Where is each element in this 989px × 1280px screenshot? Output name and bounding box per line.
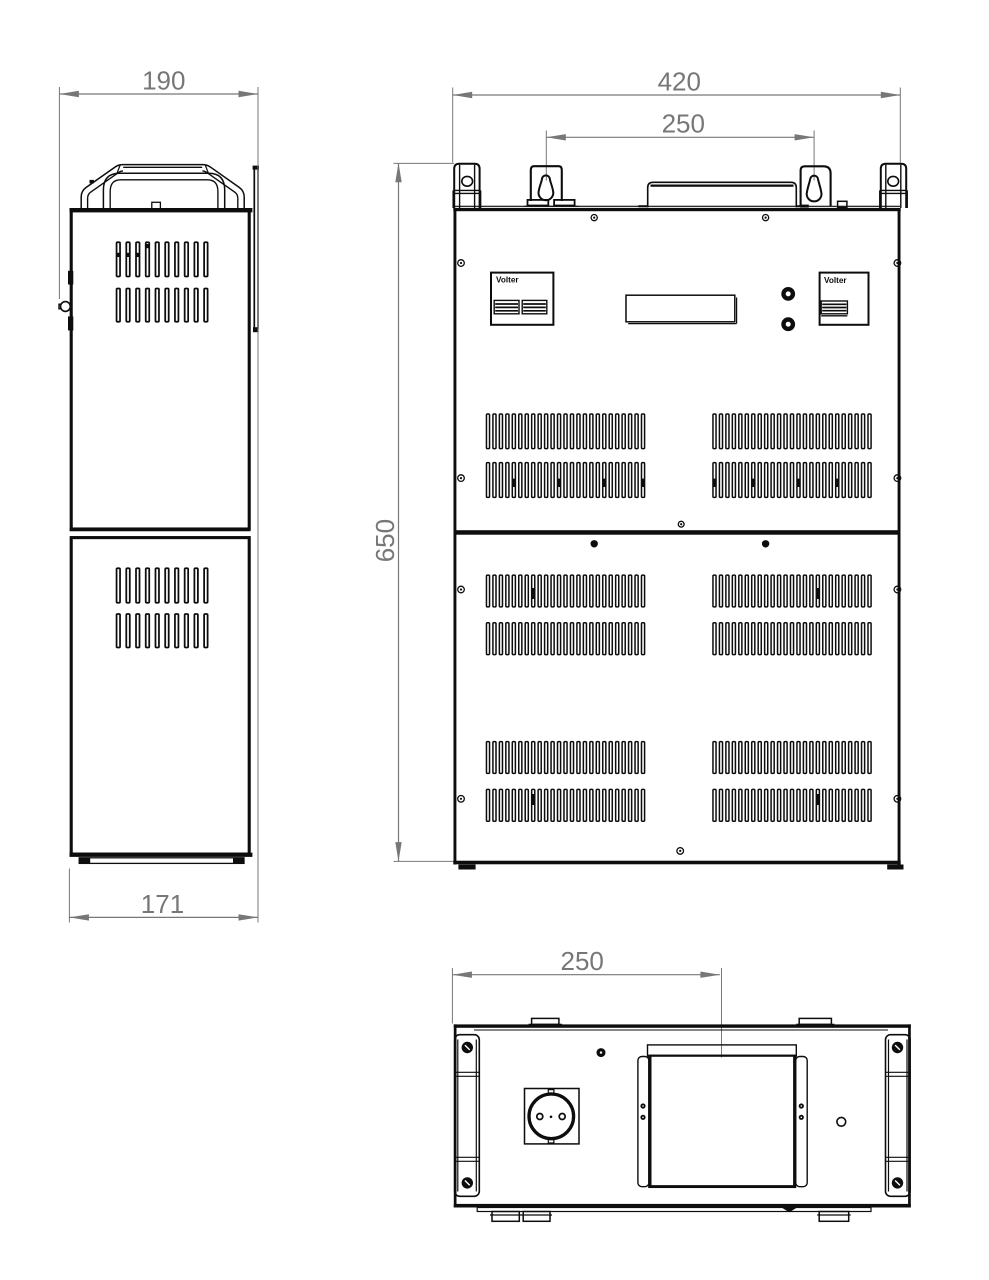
svg-text:Volter: Volter	[496, 276, 519, 285]
svg-text:250: 250	[662, 108, 705, 138]
svg-text:650: 650	[370, 519, 400, 562]
svg-text:420: 420	[658, 67, 701, 97]
svg-text:171: 171	[141, 889, 184, 919]
svg-text:Volter: Volter	[824, 276, 847, 285]
svg-text:250: 250	[561, 946, 604, 976]
svg-text:190: 190	[142, 66, 185, 96]
